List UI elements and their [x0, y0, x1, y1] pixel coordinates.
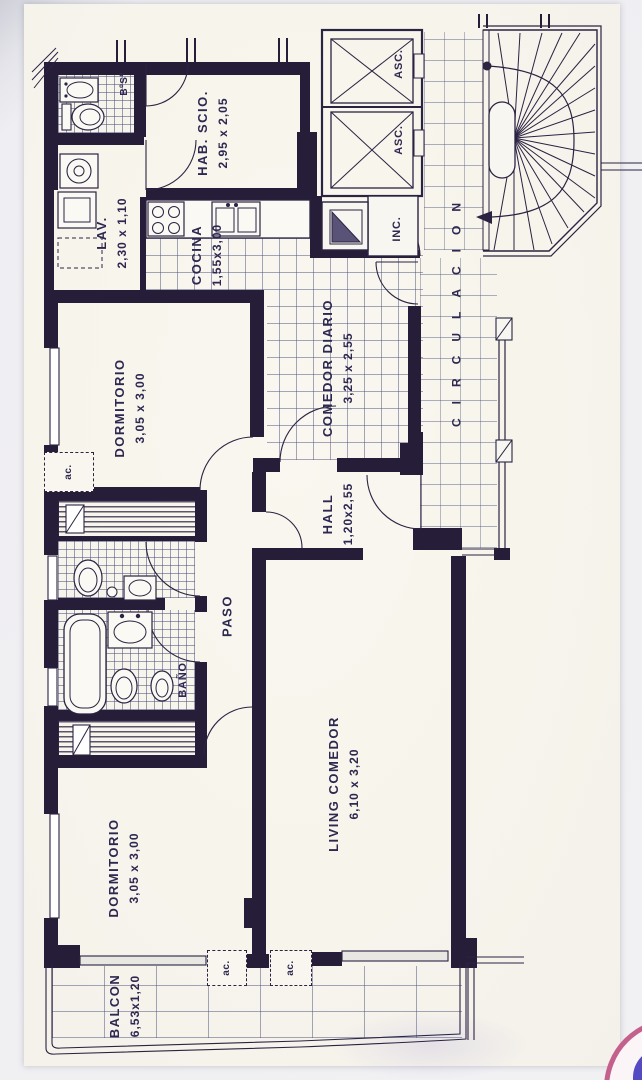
room-label-elevator-b: ASC. — [391, 125, 409, 154]
bathroom-fixtures — [64, 612, 173, 714]
room-label-elevator-a: ASC. — [391, 49, 409, 78]
ac-unit-2-label: ac. — [219, 960, 235, 975]
room-label-trash-chute: INC. — [389, 216, 407, 241]
room-label-hall: HALL1,20x2,55 — [318, 483, 358, 545]
room-label-passage: PASO — [218, 595, 239, 637]
ac-unit-3-label: ac. — [283, 960, 299, 975]
ac-unit-3: ac. — [270, 950, 312, 986]
room-label-living-dining: LIVING COMEDOR6,10 x 3,20 — [324, 716, 364, 852]
room-label-daily-dining: COMEDOR DIARIO3,25 x 2,55 — [318, 299, 358, 437]
ac-unit-2: ac. — [207, 950, 247, 986]
room-label-circulation: CIRCULACION — [447, 189, 466, 427]
room-label-balcony: BALCON6,53x1,20 — [105, 974, 145, 1039]
room-label-service-room: HAB. SCIO.2,95 x 2,05 — [193, 90, 233, 176]
room-label-laundry: LAV.2,30 x 1,10 — [92, 197, 132, 268]
toilette-fixtures — [74, 560, 156, 600]
service-bath-fixtures — [60, 78, 104, 130]
room-label-service-bath: BºSº — [117, 72, 133, 95]
agency-logo-blob — [633, 1049, 642, 1080]
ac-unit-1-label: ac. — [61, 464, 77, 479]
room-label-bathroom: BAÑO — [175, 662, 193, 698]
door-arcs — [146, 64, 421, 755]
ac-unit-1: ac. — [44, 452, 94, 492]
kitchen-fixtures — [146, 200, 310, 238]
room-label-bedroom-1: DORMITORIO3,05 x 3,00 — [110, 358, 150, 457]
staircase — [476, 26, 601, 256]
room-label-bedroom-2: DORMITORIO3,05 x 3,00 — [104, 818, 144, 917]
room-label-kitchen: COCINA1,55x3,00 — [187, 224, 227, 286]
scanned-floor-plan-photo: BºSº HAB. SCIO.2,95 x 2,05 LAV.2,30 x 1,… — [0, 0, 642, 1080]
